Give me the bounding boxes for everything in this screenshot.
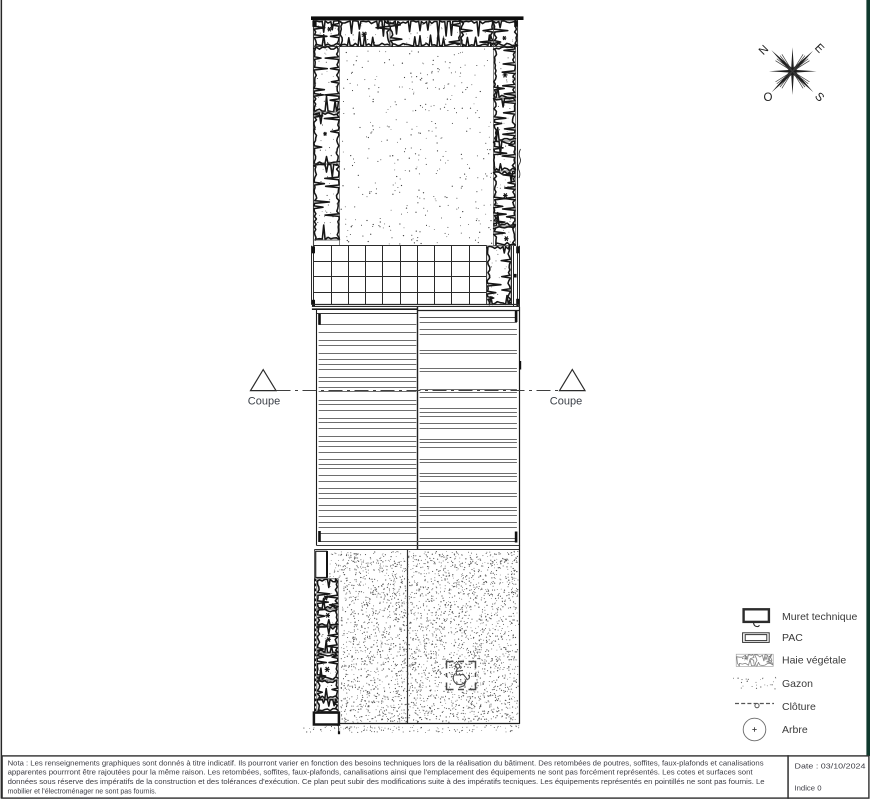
svg-text:Muret technique: Muret technique (782, 611, 857, 623)
svg-text:Coupe: Coupe (550, 396, 582, 408)
svg-text:apparentes pourrront être rajo: apparentes pourrront être rajoutées pour… (8, 770, 753, 777)
svg-text:Arbre: Arbre (782, 724, 808, 736)
svg-text:Gazon: Gazon (782, 678, 813, 690)
svg-text:Date : 03/10/2024: Date : 03/10/2024 (795, 761, 866, 770)
svg-text:PAC: PAC (782, 632, 803, 644)
svg-text:Nota : Les renseignements grap: Nota : Les renseignements graphiques son… (8, 760, 765, 767)
svg-text:Clôture: Clôture (782, 701, 816, 713)
svg-text:Coupe: Coupe (248, 396, 280, 408)
svg-text:O: O (764, 92, 773, 104)
svg-text:mobilier et l'électroménager n: mobilier et l'électroménager ne sont pas… (8, 789, 157, 796)
svg-text:données sous réserve des impér: données sous réserve des impératifs de l… (8, 779, 765, 786)
svg-text:Haie végétale: Haie végétale (782, 655, 846, 667)
svg-text:Indice 0: Indice 0 (795, 783, 822, 792)
